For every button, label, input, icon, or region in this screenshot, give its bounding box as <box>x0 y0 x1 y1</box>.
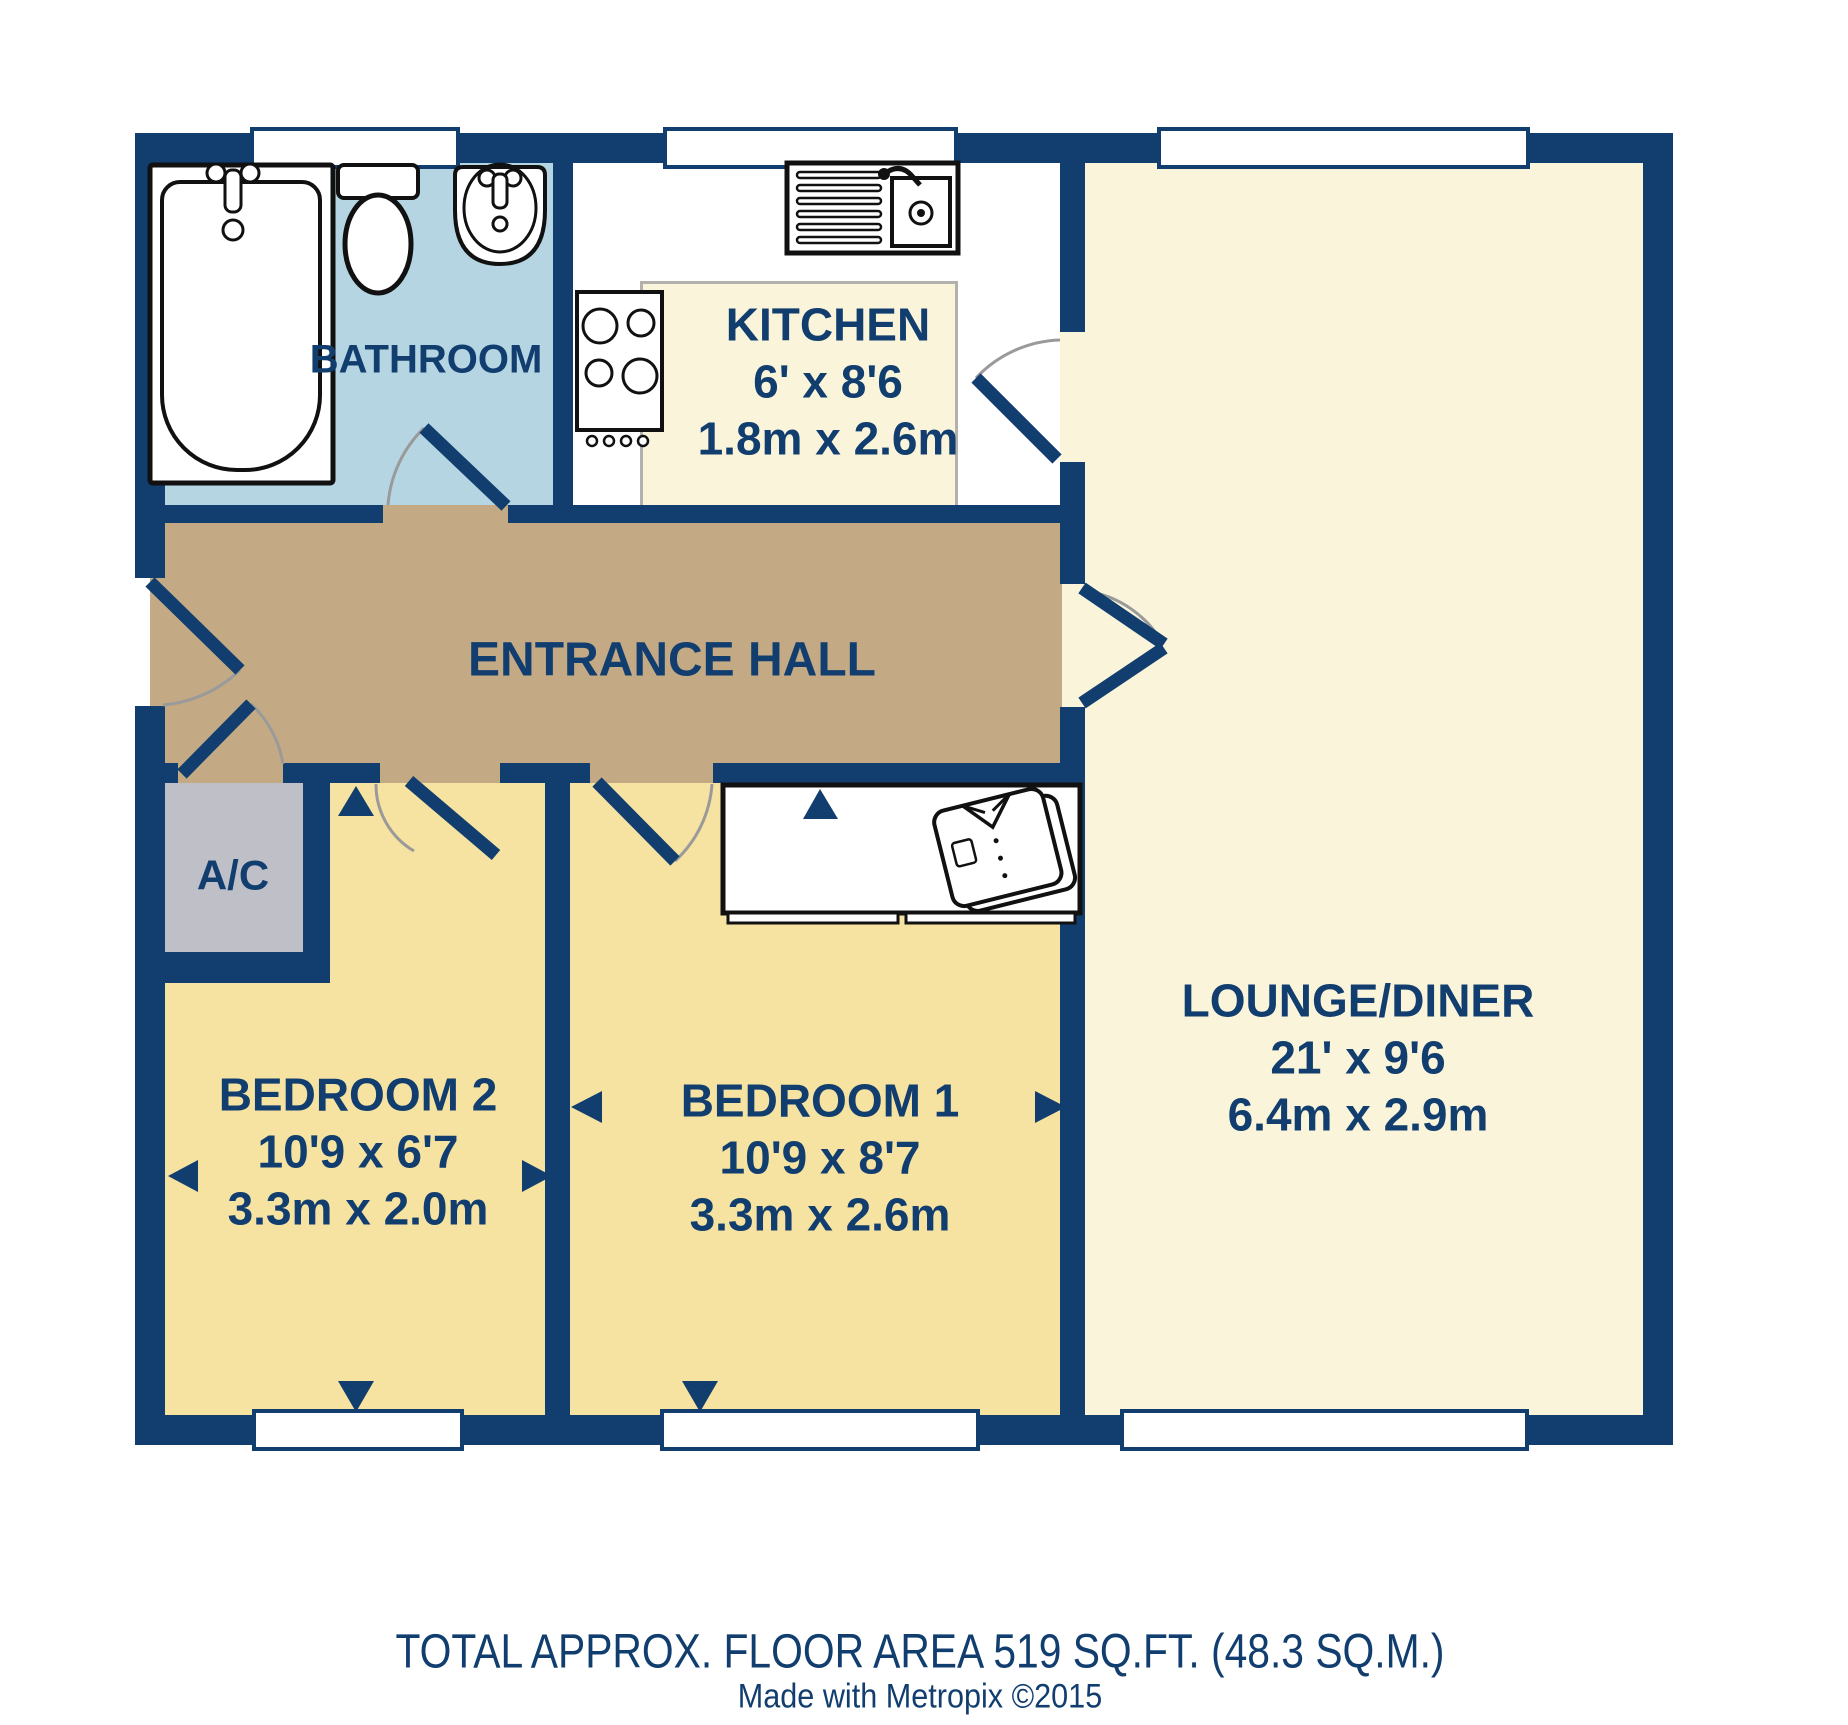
ac-door-arc <box>251 704 283 764</box>
hob-icon <box>577 292 662 446</box>
bedroom2-door-arc <box>376 784 414 851</box>
bedroom2-label: BEDROOM 2 10'9 x 6'7 3.3m x 2.0m <box>219 1067 498 1238</box>
bedroom2-arrow-down <box>338 1381 374 1412</box>
bedroom1-arrow-left <box>571 1091 602 1123</box>
kitchen-door-arc <box>976 340 1060 378</box>
wardrobe-icon <box>723 784 1080 923</box>
toilet-icon <box>338 165 418 293</box>
bathroom-door-arc <box>388 428 424 505</box>
bathroom-label: BATHROOM <box>310 332 543 389</box>
entrance-hall-label: ENTRANCE HALL <box>468 632 876 689</box>
bath-icon <box>150 164 333 483</box>
bedroom2-arrow-up <box>338 786 374 816</box>
metropix-credit-text: Made with Metropix ©2015 <box>738 1678 1102 1717</box>
entrance-door-leaf <box>150 582 240 670</box>
lounge-door-leaf-upper <box>1082 588 1164 644</box>
bedroom1-door-leaf <box>597 782 675 861</box>
kitchen-door-leaf <box>976 378 1057 459</box>
kitchen-label: KITCHEN 6' x 8'6 1.8m x 2.6m <box>698 297 959 468</box>
bedroom1-arrow-down <box>682 1381 718 1412</box>
bedroom1-arrow-right <box>1035 1091 1066 1123</box>
bathroom-door-leaf <box>424 428 506 506</box>
bedroom1-label: BEDROOM 1 10'9 x 8'7 3.3m x 2.6m <box>681 1073 960 1244</box>
bedroom2-arrow-right <box>522 1160 552 1192</box>
basin-icon <box>455 164 545 264</box>
ac-label: A/C <box>197 847 269 904</box>
entrance-door-arc <box>163 670 240 705</box>
bedroom1-door-arc <box>675 784 712 861</box>
kitchen-sink-icon <box>787 163 958 253</box>
ac-door-leaf <box>182 704 251 774</box>
plan-symbols-layer <box>0 0 1848 1725</box>
lounge-door-leaf-lower <box>1082 648 1164 703</box>
total-area-text: TOTAL APPROX. FLOOR AREA 519 SQ.FT. (48.… <box>395 1625 1444 1680</box>
bedroom2-door-leaf <box>409 781 496 855</box>
floorplan-canvas: BATHROOM KITCHEN 6' x 8'6 1.8m x 2.6m EN… <box>0 0 1848 1725</box>
bedroom2-arrow-left <box>168 1160 198 1192</box>
lounge-label: LOUNGE/DINER 21' x 9'6 6.4m x 2.9m <box>1182 973 1535 1144</box>
